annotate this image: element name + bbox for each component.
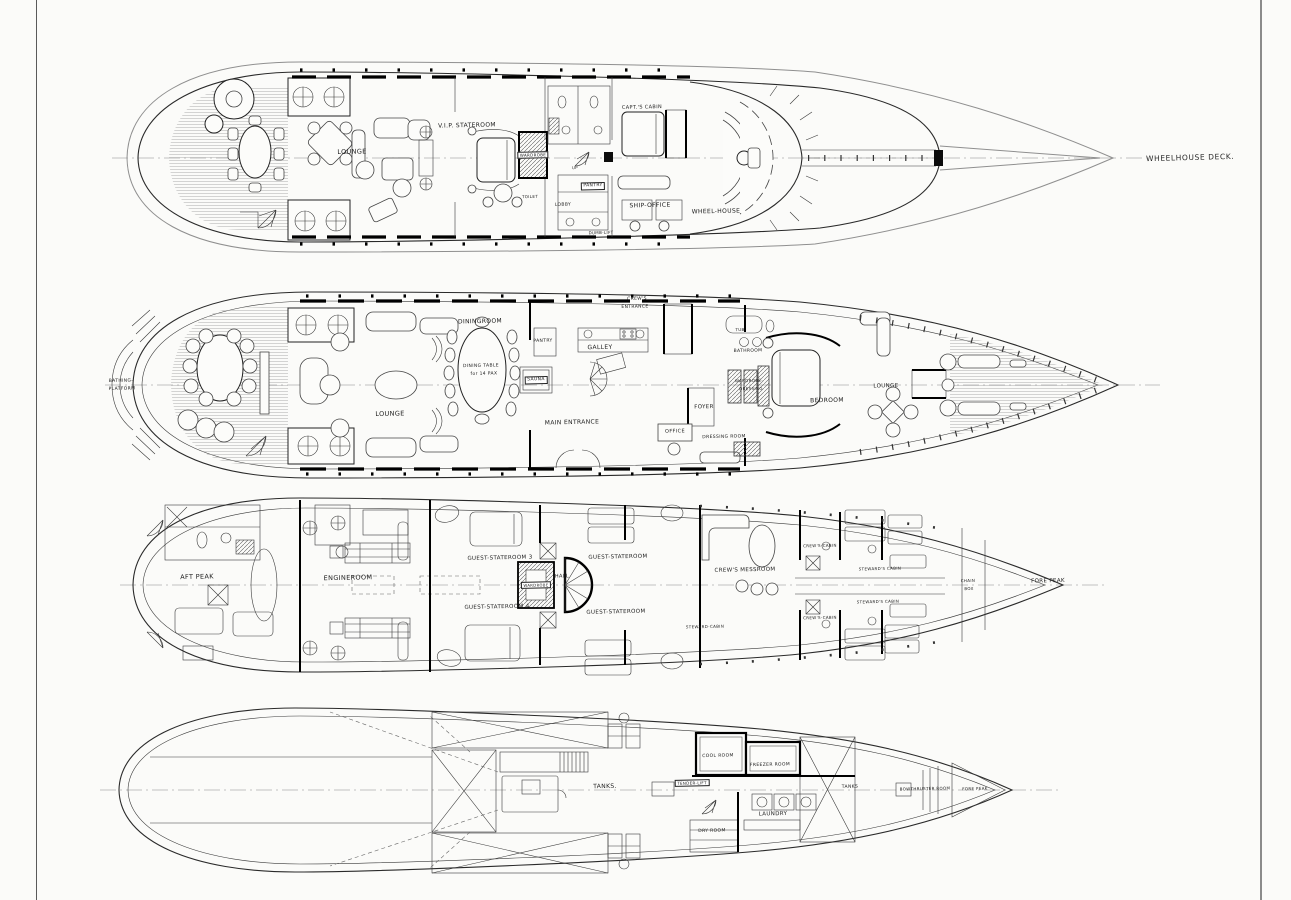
room-label: WHEEL-HOUSE — [692, 208, 741, 215]
room-label: BOX — [964, 587, 973, 591]
room-label: LOUNGE — [873, 384, 898, 390]
room-label: CHAIN — [961, 579, 976, 583]
room-label: DININGROOM — [458, 319, 502, 326]
deck-plans-drawing — [0, 0, 1291, 900]
room-label: for 14 PAX — [471, 372, 498, 377]
wheelhouse-deck-plan — [112, 62, 1150, 252]
room-label: DUMB-LIFT — [589, 231, 614, 236]
room-label: BATHING- — [109, 379, 134, 384]
room-label: CAPT.'S CABIN — [622, 105, 662, 111]
room-label: PANTRY — [533, 340, 552, 345]
room-label: PANTRY — [581, 182, 605, 190]
drawing-sheet: WHEELHOUSE DECK. LOUNGEV.I.P. STATEROOMW… — [0, 0, 1291, 900]
room-label: LOUNGE — [375, 410, 405, 417]
room-label: MAIN ENTRANCE — [545, 419, 600, 426]
room-label: CREW'S-CABIN — [803, 616, 837, 621]
room-label: TENDER-LIFT — [675, 779, 710, 787]
room-label: SAUNA — [525, 376, 548, 384]
room-label: WARDROBE — [521, 581, 551, 588]
room-label: TUB — [735, 328, 744, 332]
room-label: PLATFORM — [109, 387, 136, 392]
room-label: FOYER — [694, 405, 714, 411]
room-label: LAUNDRY — [759, 812, 788, 818]
room-label: CREW'S-CABIN — [803, 544, 837, 549]
room-label: FORE PEAK — [962, 787, 988, 792]
room-label: AFT PEAK — [180, 573, 214, 580]
drawing-page: { "document": { "type": "yacht-deck-plan… — [0, 0, 1291, 900]
room-label: COOL ROOM — [702, 754, 734, 759]
room-label: BEDROOM — [810, 398, 844, 405]
room-label: WARDROBE- — [735, 379, 763, 384]
room-label: UP — [572, 166, 578, 170]
room-label: DRY ROOM — [698, 829, 725, 834]
room-label: WARDROBE — [517, 151, 548, 159]
room-label: DINING TABLE — [463, 364, 499, 369]
room-label: TANKS. — [593, 784, 617, 790]
room-label: ENTRANCE — [621, 305, 648, 310]
lower-deck-plan — [120, 498, 1105, 675]
main-deck-plan — [105, 292, 1160, 478]
room-label: GALLEY — [587, 345, 612, 352]
room-label: FREEZER ROOM — [750, 763, 790, 768]
room-label: FORE PEAK — [1031, 579, 1065, 585]
room-label: DRESSING — [739, 387, 763, 391]
room-label: LOBBY — [555, 204, 571, 209]
room-label: ENGINEROOM — [324, 574, 373, 582]
room-label: LOUNGE — [337, 148, 367, 155]
room-label: TOILET — [522, 195, 538, 199]
room-label: DRESSING ROOM — [702, 435, 745, 440]
room-label: SHIP-OFFICE — [629, 203, 670, 210]
room-label: BATHROOM — [734, 349, 763, 354]
room-label: STEWARD-CABIN — [686, 625, 724, 630]
room-label: HALL — [555, 574, 569, 579]
room-label: V.I.P. STATEROOM — [438, 122, 496, 129]
room-label: TANKS — [842, 786, 858, 791]
room-label: OFFICE — [665, 429, 685, 434]
room-label: CREW'S — [627, 298, 647, 303]
